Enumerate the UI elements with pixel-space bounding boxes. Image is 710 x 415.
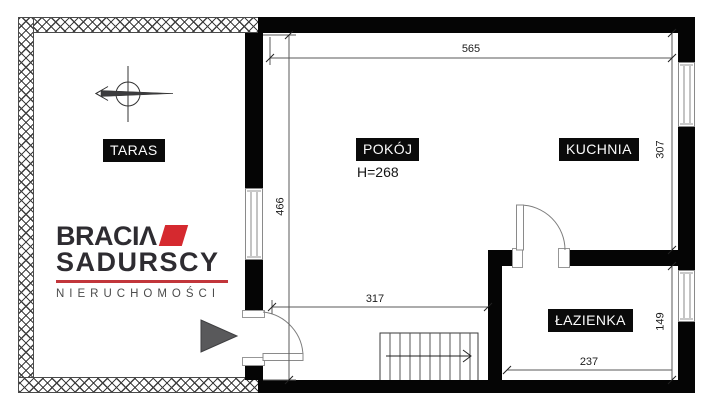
agency-logo: BRACIΛ SADURSCY NIERUCHOMOŚCI xyxy=(56,224,232,300)
entrance-arrow-icon xyxy=(201,320,237,352)
jamb-main-door-bottom xyxy=(242,357,265,366)
wall-right-middle xyxy=(678,127,695,270)
wall-right-lower xyxy=(678,322,695,393)
logo-red-flag-icon xyxy=(158,225,187,246)
plan-linework xyxy=(0,0,710,415)
jamb-bath-door-left xyxy=(512,248,523,268)
logo-word-sadurscy: SADURSCY xyxy=(56,250,232,275)
wall-left-lower xyxy=(245,366,263,380)
window-terrace xyxy=(245,188,263,260)
jamb-bath-door-right xyxy=(558,248,570,268)
wall-right-upper xyxy=(678,17,695,62)
wall-bathroom-top-left xyxy=(488,250,515,266)
floor-plan: 565 307 149 466 317 237 TARAS POKÓJ KUCH… xyxy=(0,0,710,415)
dim-bathroom-width: 237 xyxy=(569,356,609,369)
wall-bathroom-top-right xyxy=(569,250,678,266)
logo-line1: BRACIΛ xyxy=(56,224,232,249)
dim-room-depth: 466 xyxy=(275,180,288,234)
window-bathroom xyxy=(678,270,695,322)
logo-word-bracia: BRACIΛ xyxy=(56,224,157,249)
room-label-taras: TARAS xyxy=(103,139,165,162)
compass-icon xyxy=(96,66,173,122)
room-label-kuchnia: KUCHNIA xyxy=(559,138,639,161)
stairs xyxy=(380,333,478,380)
terrace-hatch-left xyxy=(18,17,34,393)
logo-divider xyxy=(56,280,228,283)
dim-room-width: 317 xyxy=(355,293,395,306)
dim-top-width: 565 xyxy=(451,43,491,56)
door-main-entrance xyxy=(263,312,303,361)
wall-left-upper xyxy=(245,33,263,188)
wall-top xyxy=(258,17,695,33)
terrace-hatch-bottom xyxy=(18,377,261,393)
jamb-main-door-top xyxy=(242,310,265,318)
dim-kitchen-depth: 307 xyxy=(655,123,668,177)
terrace-hatch-top xyxy=(18,17,259,33)
stairs-direction-arrow xyxy=(386,350,471,362)
ceiling-height-note: H=268 xyxy=(357,165,399,179)
wall-bottom xyxy=(258,380,695,393)
wall-bathroom-left xyxy=(488,250,502,380)
door-bathroom xyxy=(517,205,566,250)
window-kitchen xyxy=(678,62,695,127)
wall-left-middle xyxy=(245,260,263,310)
room-label-pokoj: POKÓJ xyxy=(356,138,419,161)
room-label-lazienka: ŁAZIENKA xyxy=(548,309,633,332)
dim-bathroom-depth: 149 xyxy=(655,295,668,349)
logo-subtitle: NIERUCHOMOŚCI xyxy=(56,288,232,300)
